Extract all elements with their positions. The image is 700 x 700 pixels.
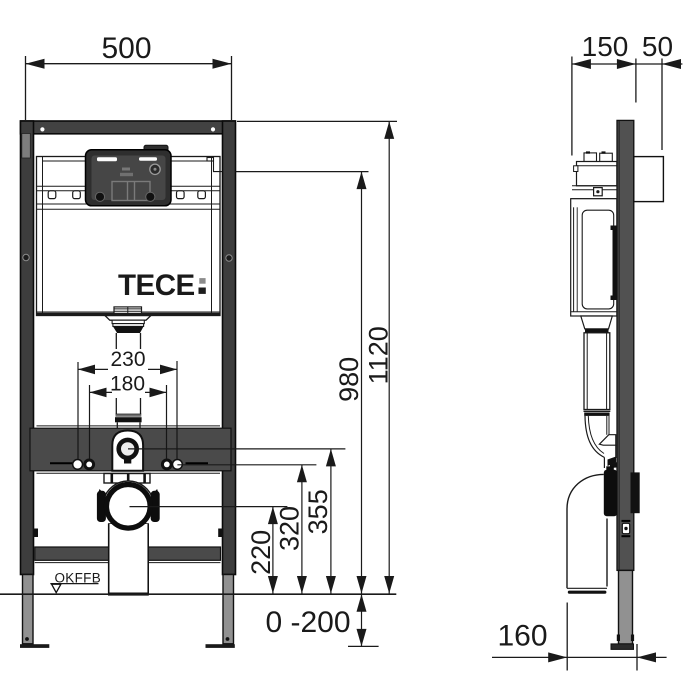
svg-text:355: 355 — [303, 489, 333, 534]
svg-text:320: 320 — [275, 506, 305, 551]
svg-text:980: 980 — [334, 357, 364, 402]
svg-text:0 -200: 0 -200 — [265, 606, 350, 639]
svg-text:160: 160 — [497, 620, 547, 653]
svg-text:150: 150 — [582, 31, 629, 62]
svg-text:500: 500 — [101, 32, 151, 65]
svg-text:230: 230 — [110, 348, 145, 371]
svg-text:50: 50 — [642, 31, 673, 62]
svg-text:1120: 1120 — [364, 326, 394, 384]
svg-text:180: 180 — [110, 373, 145, 396]
svg-text:TECE: TECE — [118, 269, 195, 302]
svg-text:220: 220 — [246, 530, 276, 575]
